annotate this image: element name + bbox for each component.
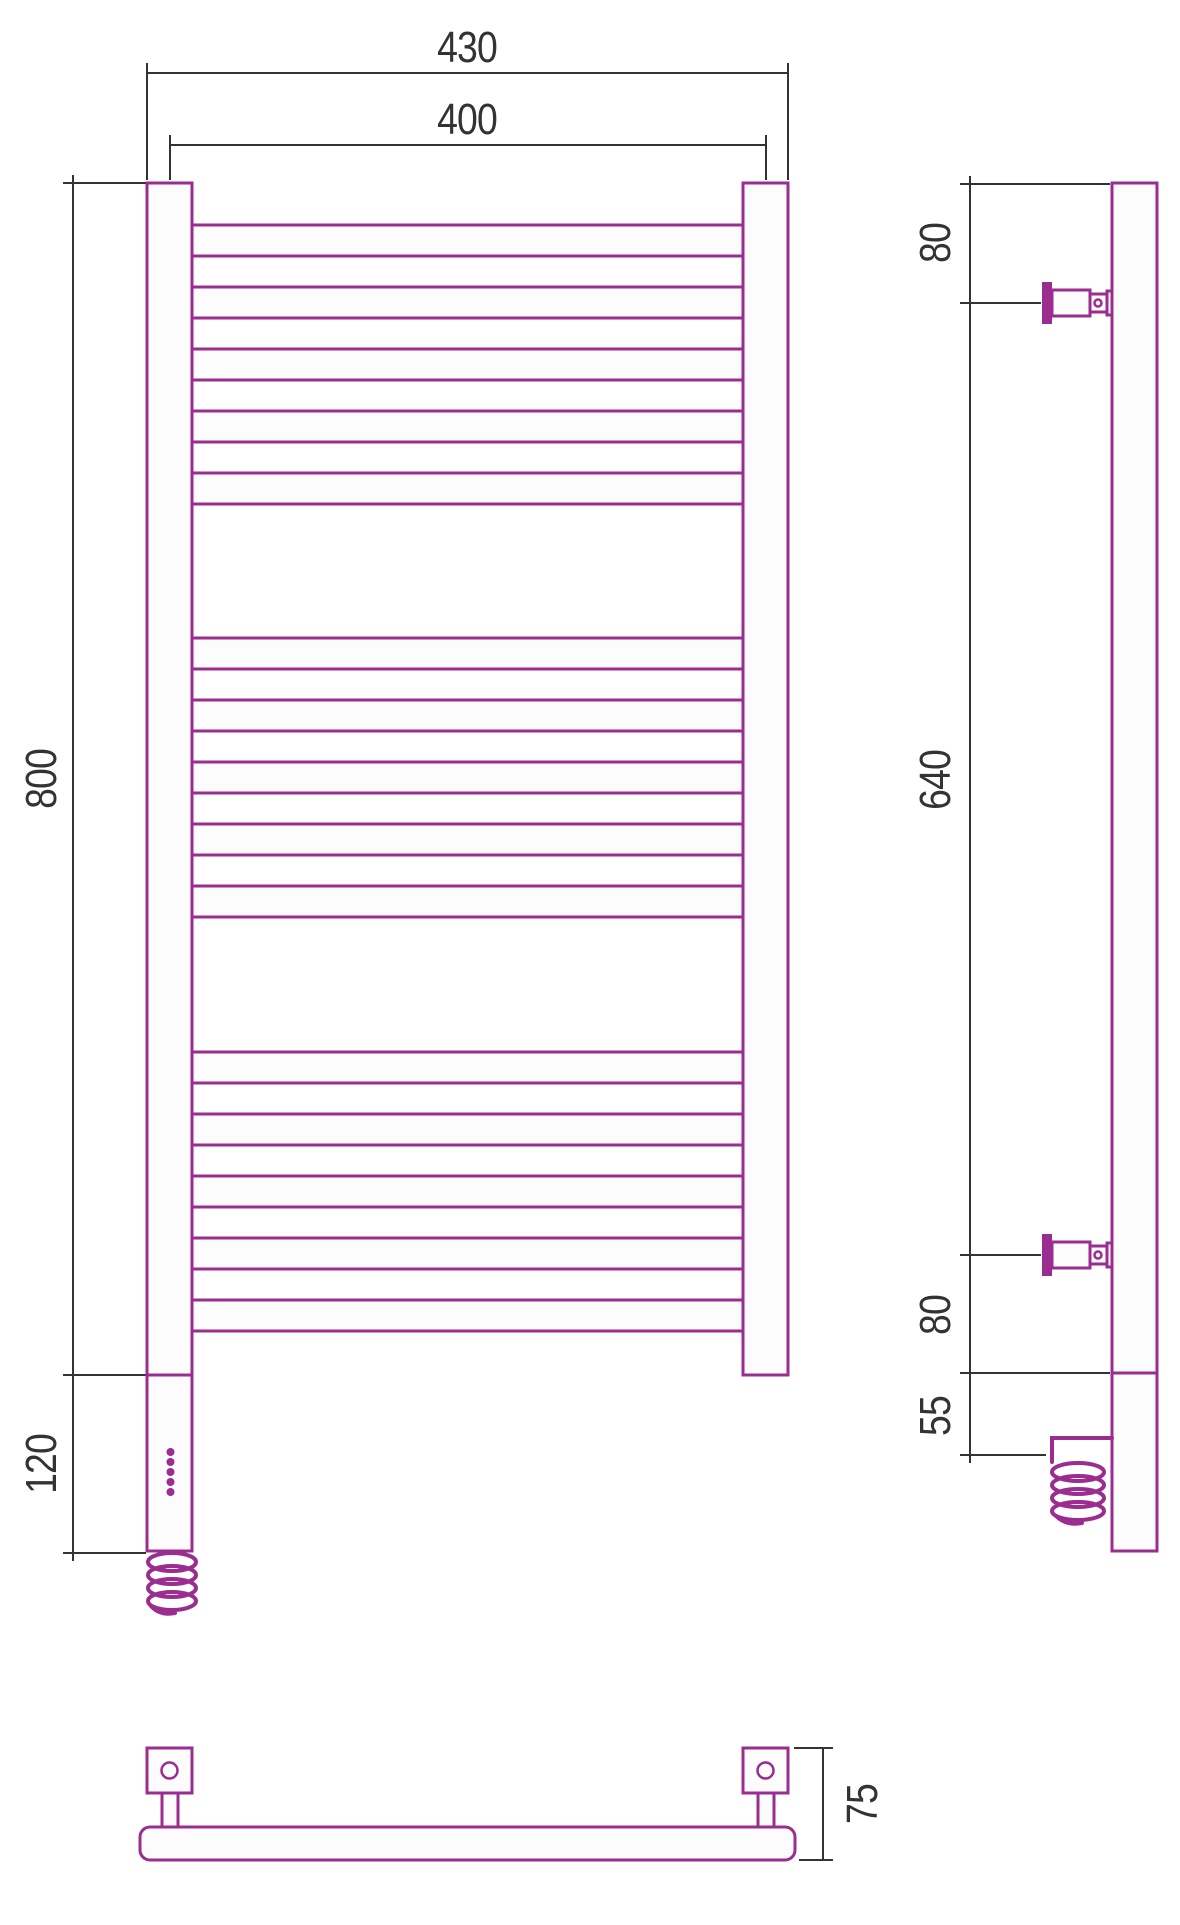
front-view: 430 400 800 120 (16, 22, 788, 1614)
bottom-tube (140, 1827, 795, 1860)
rung (191, 824, 745, 855)
dim-label-640: 640 (910, 750, 960, 810)
rung (191, 225, 745, 256)
bracket-neck (1090, 294, 1107, 312)
drawing-page: 430 400 800 120 (0, 0, 1180, 1920)
rung (191, 1114, 745, 1145)
front-right-post (743, 183, 788, 1375)
led-dot (167, 1488, 175, 1496)
bracket-body (1052, 1242, 1090, 1268)
rung (191, 1052, 745, 1083)
side-wall-bracket-top (1042, 282, 1113, 324)
dim-label-80-bottom: 80 (910, 1295, 960, 1335)
side-post (1112, 183, 1157, 1373)
rung (191, 349, 745, 380)
dim-label-80-top: 80 (910, 223, 960, 263)
dim-label-120: 120 (16, 1434, 66, 1494)
rung (191, 473, 745, 504)
side-wall-bracket-bottom (1042, 1234, 1113, 1276)
bottom-bracket-left (147, 1748, 192, 1827)
side-cable-coil (1052, 1438, 1112, 1524)
side-heating-housing (1112, 1373, 1157, 1551)
front-cable-coil (148, 1553, 196, 1614)
front-heating-housing (147, 1375, 192, 1551)
rung (191, 1300, 745, 1331)
bracket-neck (1090, 1246, 1107, 1264)
dim-label-55: 55 (910, 1396, 960, 1436)
rung (191, 700, 745, 731)
rung (191, 287, 745, 318)
side-view: 80 640 80 55 (910, 176, 1157, 1551)
rung (191, 1238, 745, 1269)
bracket-body (1052, 290, 1090, 316)
rung (191, 1176, 745, 1207)
bracket-wall-plate (147, 1748, 192, 1793)
front-left-post (147, 183, 192, 1375)
bracket-stem (758, 1793, 774, 1827)
drawing-canvas: 430 400 800 120 (0, 0, 1180, 1920)
front-dim-axis-width: 400 (170, 94, 766, 180)
front-rungs (191, 225, 745, 1331)
dim-label-800: 800 (16, 749, 66, 809)
bracket-wall-plate (743, 1748, 788, 1793)
led-dot (167, 1448, 175, 1456)
bottom-view: 75 (140, 1748, 887, 1860)
dim-label-400: 400 (437, 94, 497, 144)
led-dot (167, 1458, 175, 1466)
bottom-bracket-right (743, 1748, 788, 1827)
bottom-dim-depth: 75 (794, 1748, 887, 1860)
cable-exit (1052, 1438, 1112, 1462)
side-dimensions: 80 640 80 55 (910, 176, 1110, 1463)
rung (191, 638, 745, 669)
rung (191, 886, 745, 917)
front-dim-height: 800 120 (16, 175, 146, 1561)
bracket-stem (162, 1793, 178, 1827)
dim-label-430: 430 (437, 22, 497, 72)
rung (191, 762, 745, 793)
rung (191, 411, 745, 442)
led-dot (167, 1478, 175, 1486)
dim-label-75: 75 (837, 1784, 887, 1824)
led-dot (167, 1468, 175, 1476)
